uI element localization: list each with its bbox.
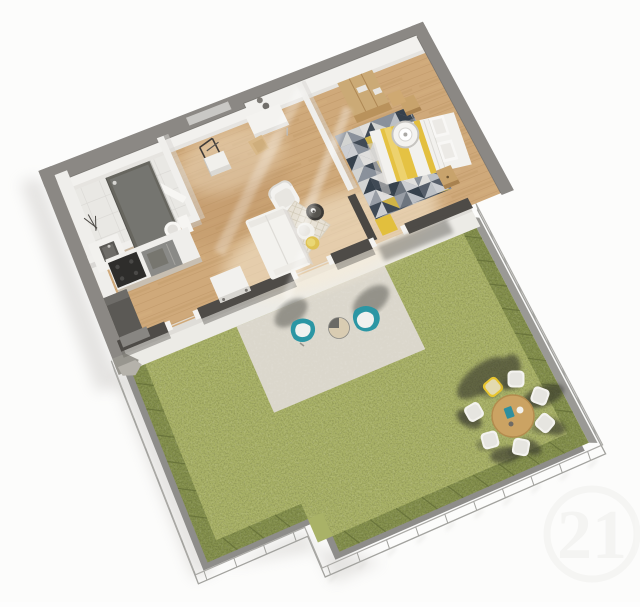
svg-text:21: 21 bbox=[557, 497, 627, 574]
